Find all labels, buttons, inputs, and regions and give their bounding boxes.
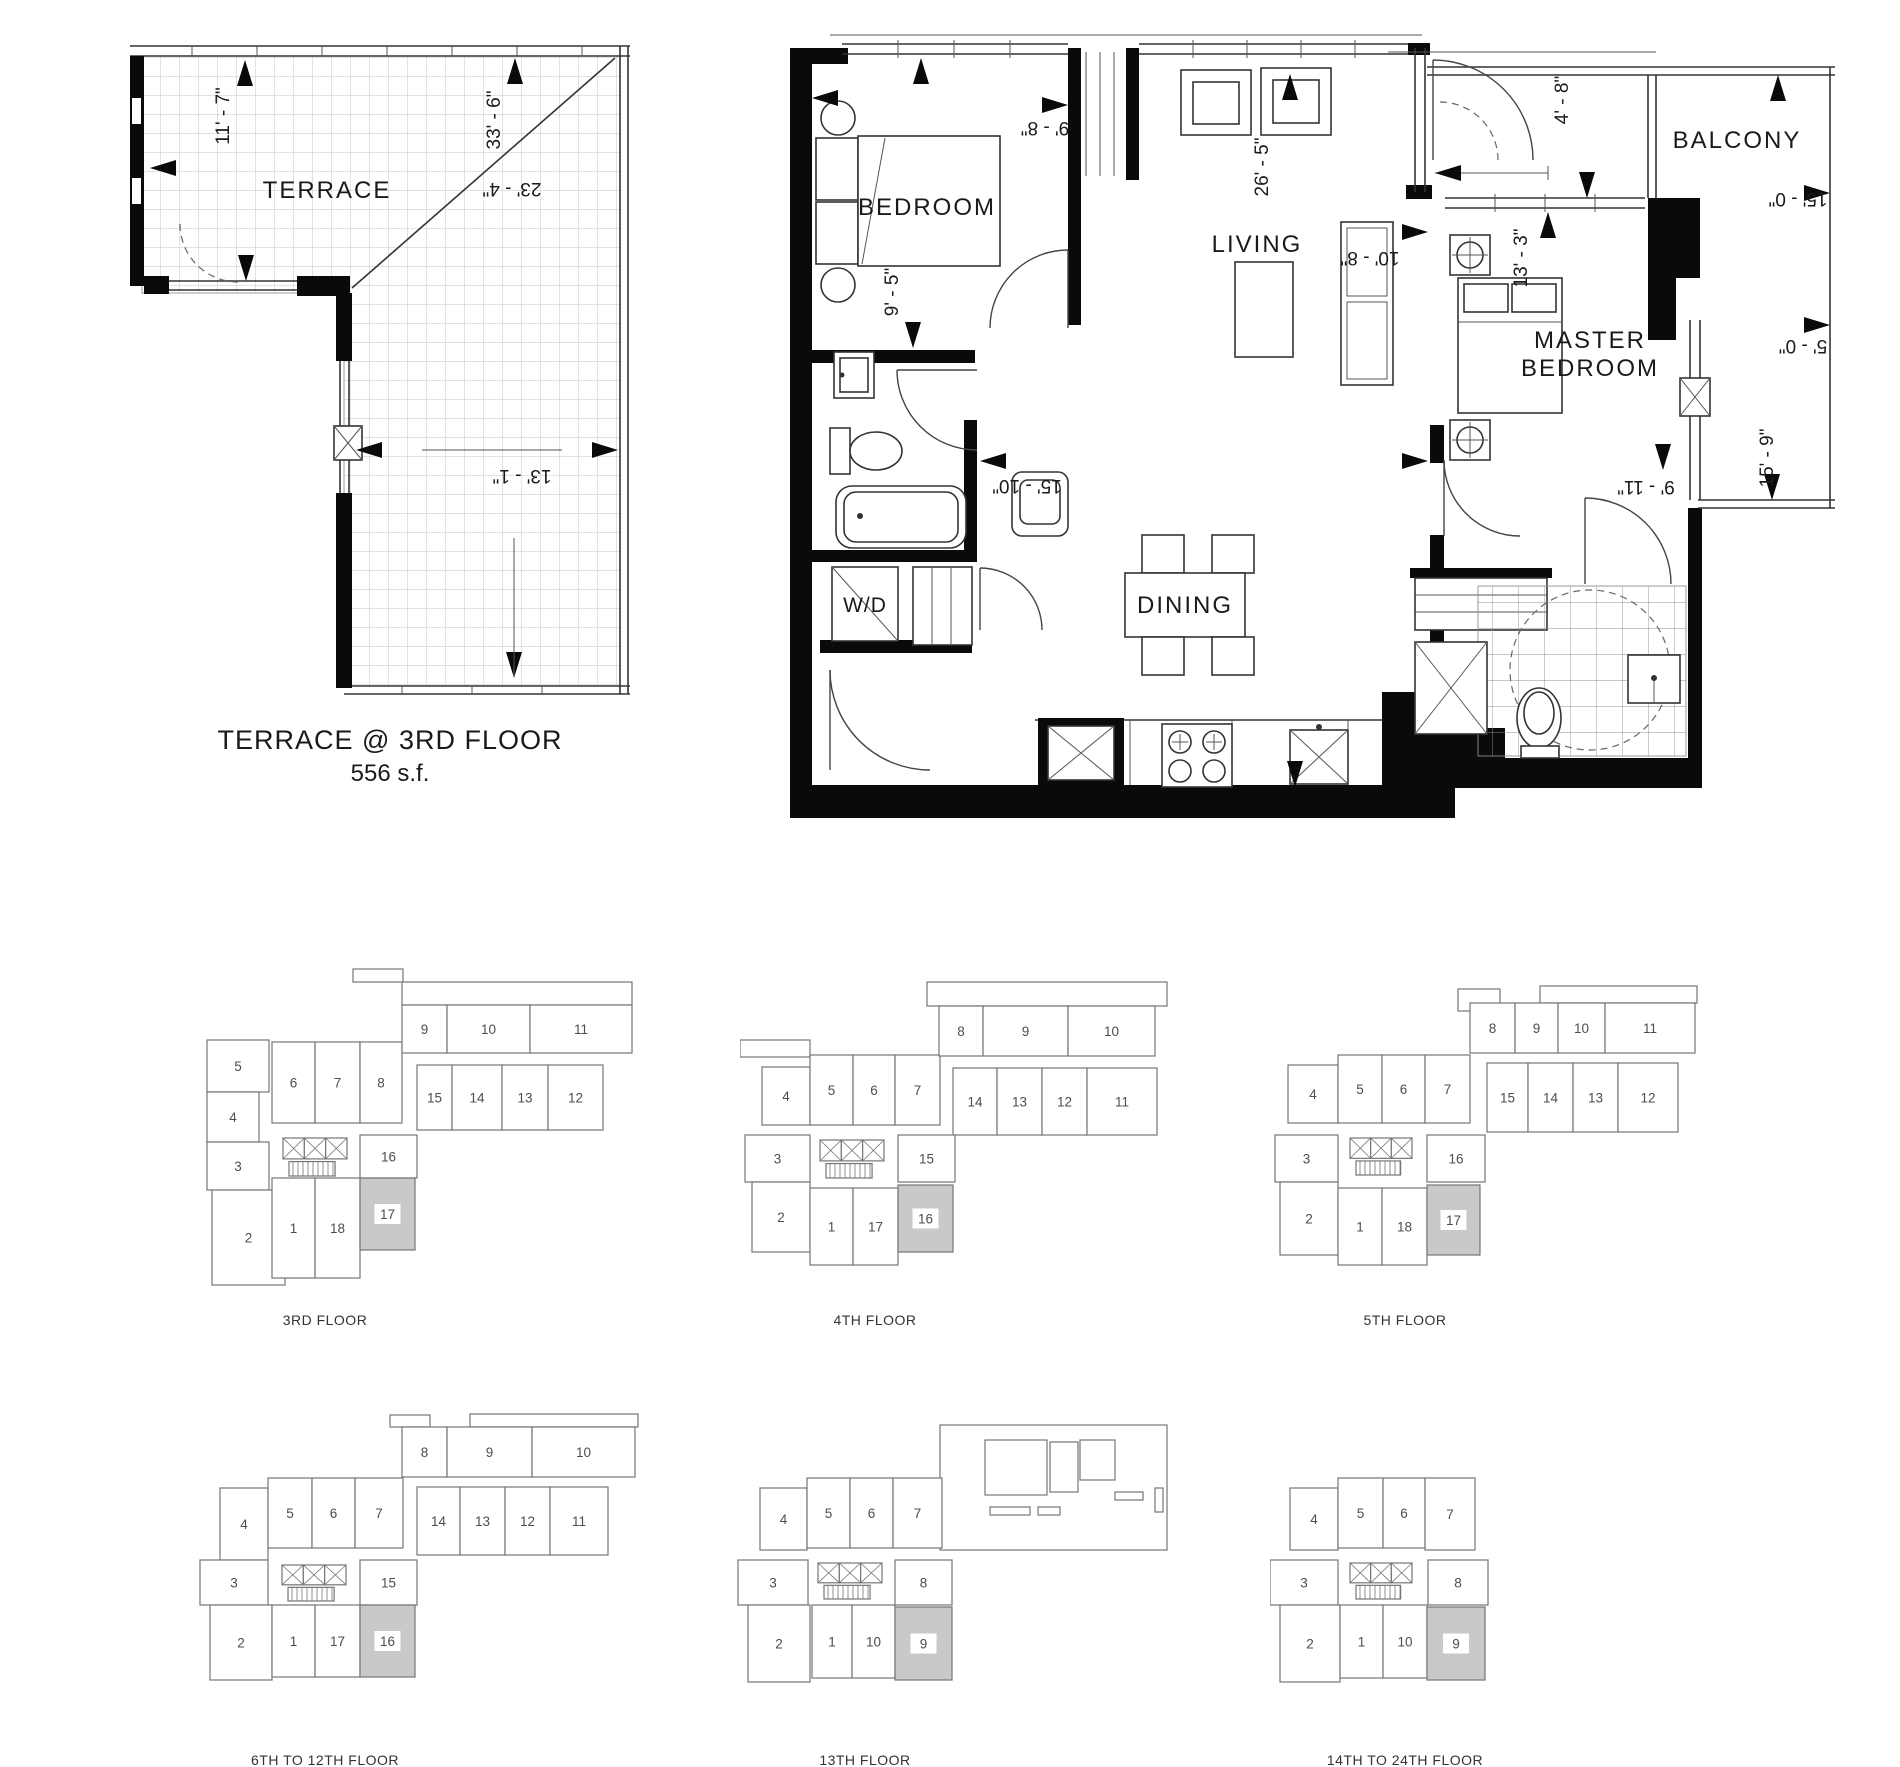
- keyplan-caption: 3RD FLOOR: [200, 1312, 450, 1328]
- keyplan-room: [470, 1414, 638, 1427]
- keyplan-unit-number: 10: [1104, 1024, 1119, 1039]
- keyplan-unit-number: 16: [380, 1634, 395, 1649]
- toilet-icon: [830, 428, 902, 474]
- keyplan-unit-number: 17: [1446, 1213, 1461, 1228]
- keyplan-unit-number: 2: [775, 1637, 783, 1652]
- keyplan-unit-number: 8: [957, 1024, 965, 1039]
- keyplan-unit-number: 6: [870, 1083, 878, 1098]
- keyplan-unit-number: 13: [1588, 1091, 1603, 1106]
- keyplan-unit-number: 8: [421, 1445, 429, 1460]
- keyplan-unit-number: 10: [576, 1445, 591, 1460]
- chair-icon: [1142, 535, 1184, 573]
- keyplan-6th-to-12th-floor: 4325678910141312111511716 6TH TO 12TH FL…: [190, 1400, 670, 1767]
- keyplan-unit-number: 2: [245, 1231, 253, 1246]
- keyplan-caption: 13TH FLOOR: [740, 1752, 990, 1767]
- closet-icon: [1086, 52, 1114, 176]
- keyplan-unit-number: 9: [920, 1637, 928, 1652]
- keyplan-5th-floor: 432567891011151413121611817 5TH FLOOR: [1270, 960, 1750, 1350]
- prep-sink-icon: [1290, 724, 1348, 784]
- keyplan-room: [1038, 1507, 1060, 1515]
- living-label: LIVING: [1212, 231, 1303, 258]
- terrace-plan: 11' - 7" 33' - 6" 23' - 4" 13' - 1" TERR…: [122, 38, 642, 708]
- dim-bedroom-depth: 9' - 5": [882, 268, 903, 316]
- keyplan-unit-number: 3: [774, 1152, 782, 1167]
- lamp-icon: [821, 101, 855, 135]
- dim-terrace-left: 11' - 7": [213, 87, 234, 145]
- keyplan-drawing: 4325678910141312111511716: [190, 1400, 670, 1767]
- terrace-floor: [142, 56, 620, 686]
- chair-icon: [1212, 535, 1254, 573]
- keyplan-unit-number: 10: [1397, 1635, 1412, 1650]
- keyplan-unit-number: 7: [914, 1083, 922, 1098]
- dim-entry-width: 4' - 8": [1552, 76, 1573, 124]
- keyplan-room: [402, 982, 632, 1005]
- keyplan-unit-number: 5: [1357, 1506, 1365, 1521]
- laundry-label: W/D: [843, 594, 887, 617]
- keyplan-room: [1115, 1492, 1143, 1500]
- keyplan-13th-floor: 43256781109 13TH FLOOR: [730, 1400, 1210, 1767]
- master-bedroom-label-2: BEDROOM: [1521, 355, 1659, 382]
- keyplan-unit-number: 1: [828, 1635, 836, 1650]
- keyplan-unit-number: 14: [967, 1095, 983, 1110]
- dim-balcony-mid: 5' - 0": [1779, 335, 1827, 356]
- keyplan-unit-number: 12: [520, 1514, 535, 1529]
- keyplan-unit-number: 12: [568, 1091, 583, 1106]
- keyplan-unit-number: 12: [1640, 1091, 1655, 1106]
- laundry: W/D: [830, 567, 972, 770]
- keyplan-unit-number: 6: [1400, 1082, 1408, 1097]
- keyplan-unit-number: 3: [234, 1159, 242, 1174]
- keyplan-unit-number: 13: [517, 1091, 532, 1106]
- living-room: LIVING: [1181, 68, 1393, 385]
- bathtub-icon: [836, 486, 966, 548]
- stairs-icon: [1356, 1161, 1401, 1175]
- keyplan-unit-number: 5: [1356, 1082, 1364, 1097]
- bedroom-label: BEDROOM: [858, 194, 996, 221]
- keyplan-caption: 6TH TO 12TH FLOOR: [200, 1752, 450, 1767]
- keyplan-unit-number: 5: [286, 1506, 294, 1521]
- keyplan-drawing: 43256781109: [1270, 1400, 1750, 1767]
- keyplan-unit-number: 10: [866, 1635, 881, 1650]
- terrace-caption-title: TERRACE @ 3RD FLOOR: [160, 722, 620, 758]
- keyplan-unit-number: 11: [1115, 1095, 1129, 1110]
- keyplan-drawing: 43256781109: [730, 1400, 1210, 1767]
- keyplan-unit-number: 6: [868, 1506, 876, 1521]
- keyplan-unit-number: 4: [240, 1517, 248, 1532]
- keyplan-unit-number: 13: [1012, 1095, 1027, 1110]
- keyplan-unit-number: 18: [330, 1221, 345, 1236]
- keyplan-unit-number: 7: [375, 1506, 383, 1521]
- keyplan-unit-number: 4: [1310, 1512, 1318, 1527]
- keyplan-unit-number: 5: [234, 1059, 242, 1074]
- keyplan-unit-number: 2: [1305, 1212, 1313, 1227]
- keyplan-unit-number: 8: [1454, 1576, 1462, 1591]
- keyplan-unit-number: 14: [469, 1091, 485, 1106]
- keyplan-drawing: 432567891011151413121611817: [1270, 960, 1750, 1350]
- terrace-caption: TERRACE @ 3RD FLOOR 556 s.f.: [160, 722, 620, 791]
- terrace-room-label: TERRACE: [263, 177, 392, 204]
- floor-plan-sheet: 11' - 7" 33' - 6" 23' - 4" 13' - 1" TERR…: [0, 0, 1900, 1767]
- kitchen-sink-icon: [1038, 718, 1124, 788]
- keyplan-unit-number: 9: [421, 1022, 429, 1037]
- bedroom-door-arc: [990, 250, 1068, 328]
- armchair-icon: [1181, 70, 1251, 135]
- keyplan-unit-number: 5: [828, 1083, 836, 1098]
- keyplan-unit-number: 9: [486, 1445, 494, 1460]
- entry: [1433, 60, 1548, 180]
- keyplan-unit-number: 16: [1448, 1152, 1463, 1167]
- keyplan-unit-number: 3: [230, 1576, 238, 1591]
- keyplan-unit-number: 1: [828, 1220, 836, 1235]
- master-bedroom-label-1: MASTER: [1534, 327, 1646, 354]
- keyplan-unit-number: 1: [290, 1221, 298, 1236]
- keyplan-unit-number: 15: [427, 1091, 442, 1106]
- keyplan-unit-number: 16: [918, 1212, 933, 1227]
- keyplan-room: [1050, 1442, 1078, 1492]
- keyplan-unit-number: 9: [1533, 1021, 1541, 1036]
- keyplan-unit-number: 17: [380, 1207, 395, 1222]
- keyplan-unit-number: 6: [1400, 1506, 1408, 1521]
- balcony-label: BALCONY: [1673, 127, 1802, 154]
- unit-floor-plan: BEDROOM LIVING: [790, 30, 1835, 830]
- keyplan-unit-number: 1: [290, 1634, 298, 1649]
- dim-master-width: 13' - 3": [1511, 229, 1532, 288]
- keyplan-unit-number: 15: [1500, 1091, 1515, 1106]
- dim-balcony-top: 15' - 0": [1769, 188, 1828, 209]
- keyplan-unit-number: 2: [237, 1636, 245, 1651]
- keyplan-unit-number: 13: [475, 1514, 490, 1529]
- keyplan-unit-number: 16: [381, 1150, 396, 1165]
- sink-icon: [1628, 655, 1680, 703]
- keyplan-room: [1080, 1440, 1115, 1480]
- keyplan-unit-number: 7: [1446, 1507, 1454, 1522]
- keyplan-unit-number: 12: [1057, 1095, 1072, 1110]
- ensuite-door-arc: [1585, 498, 1671, 584]
- lamp-icon: [821, 268, 855, 302]
- front-door-arc: [830, 670, 930, 770]
- keyplan-unit-number: 3: [769, 1576, 777, 1591]
- keyplan-drawing: 543267891011151413121611817: [190, 960, 670, 1350]
- keyplan-14th-to-24th-floor: 43256781109 14TH TO 24TH FLOOR: [1270, 1400, 1750, 1767]
- ceiling-light-icon: [1450, 420, 1490, 460]
- shower-icon: [1415, 642, 1487, 734]
- keyplan-unit-number: 1: [1356, 1220, 1364, 1235]
- keyplan-room: [1155, 1488, 1163, 1512]
- keyplan-unit-number: 7: [334, 1076, 342, 1091]
- keyplan-unit-number: 15: [381, 1576, 396, 1591]
- dim-living-length: 26' - 5": [1252, 138, 1273, 197]
- keyplan-unit-number: 11: [1643, 1021, 1657, 1036]
- keyplan-unit-number: 15: [919, 1152, 934, 1167]
- dim-terrace-diagonal: 33' - 6": [484, 91, 505, 150]
- armchair-icon: [1261, 68, 1331, 135]
- keyplan-unit-number: 18: [1397, 1220, 1412, 1235]
- master-door-arc: [1444, 460, 1520, 536]
- dining-label: DINING: [1137, 592, 1233, 619]
- keyplan-caption: 14TH TO 24TH FLOOR: [1280, 1752, 1530, 1767]
- kitchen-counter-icon: [1341, 222, 1393, 385]
- keyplan-unit-number: 9: [1452, 1637, 1460, 1652]
- keyplan-unit-number: 1: [1358, 1635, 1366, 1650]
- keyplan-unit-number: 6: [290, 1076, 298, 1091]
- dim-dining-width: 15' - 10": [992, 475, 1062, 496]
- dim-terrace-top-width: 23' - 4": [483, 178, 542, 199]
- bathroom: [830, 352, 977, 548]
- keyplan-room: [985, 1440, 1047, 1495]
- toilet-icon: [1517, 688, 1561, 758]
- keyplan-3rd-floor: 543267891011151413121611817 3RD FLOOR: [190, 960, 670, 1350]
- keyplan-unit-number: 9: [1022, 1024, 1030, 1039]
- keyplan-unit-number: 2: [777, 1210, 785, 1225]
- chair-icon: [1212, 637, 1254, 675]
- hall-door-arc: [980, 568, 1042, 630]
- keyplan-unit-number: 7: [914, 1506, 922, 1521]
- keyplan-room: [740, 1040, 810, 1057]
- keyplan-unit-number: 7: [1444, 1082, 1452, 1097]
- dim-balcony-right: 15' - 9": [1757, 429, 1778, 488]
- keyplan-unit-number: 4: [229, 1110, 237, 1125]
- keyplan-unit-number: 17: [330, 1634, 345, 1649]
- keyplan-unit-number: 4: [780, 1512, 788, 1527]
- dining: DINING: [1125, 535, 1254, 675]
- linen-closet-icon: [913, 567, 972, 645]
- keyplan-room: [353, 969, 403, 982]
- keyplan-unit-number: 11: [572, 1514, 586, 1529]
- keyplan-unit-number: 8: [377, 1076, 385, 1091]
- keyplan-unit-number: 10: [481, 1022, 496, 1037]
- keyplan-room: [1540, 986, 1697, 1003]
- keyplan-caption: 5TH FLOOR: [1280, 1312, 1530, 1328]
- keyplan-drawing: 4325678910141312111511716: [740, 960, 1220, 1350]
- keyplan-caption: 4TH FLOOR: [750, 1312, 1000, 1328]
- dim-kitchen-width: 10' - 8": [1341, 247, 1400, 268]
- keyplan-unit-number: 4: [782, 1089, 790, 1104]
- keyplan-unit-number: 6: [330, 1506, 338, 1521]
- keyplan-unit-number: 14: [1543, 1091, 1559, 1106]
- keyplan-unit-number: 5: [825, 1506, 833, 1521]
- chair-icon: [1142, 637, 1184, 675]
- sink-icon: [834, 352, 874, 398]
- stairs-icon: [1356, 1585, 1401, 1599]
- keyplan-unit-number: 3: [1303, 1152, 1311, 1167]
- keyplan-room: [990, 1507, 1030, 1515]
- keyplan-unit-number: 17: [868, 1220, 883, 1235]
- keyplan-room: [927, 982, 1167, 1006]
- keyplan-unit-number: 3: [1300, 1576, 1308, 1591]
- dim-terrace-lower-width: 13' - 1": [493, 465, 552, 486]
- keyplan-room: [390, 1415, 430, 1427]
- ceiling-light-icon: [1450, 235, 1490, 275]
- keyplan-unit-number: 8: [1489, 1021, 1497, 1036]
- keyplan-unit-number: 8: [920, 1576, 928, 1591]
- keyplan-unit-number: 4: [1309, 1087, 1317, 1102]
- keyplan-4th-floor: 4325678910141312111511716 4TH FLOOR: [740, 960, 1220, 1350]
- dim-bedroom-width: 9' - 8": [1021, 117, 1069, 138]
- stove-icon: [1162, 724, 1232, 787]
- terrace-caption-area: 556 s.f.: [160, 758, 620, 790]
- keyplan-unit-number: 2: [1306, 1637, 1314, 1652]
- keyplan-unit-number: 14: [431, 1514, 447, 1529]
- closet-door-arc: [1440, 102, 1498, 160]
- coffee-table-icon: [1235, 262, 1293, 357]
- keyplan-unit-number: 11: [574, 1022, 588, 1037]
- kitchen: [1035, 718, 1382, 788]
- dim-master-depth: 9' - 11": [1617, 476, 1675, 497]
- keyplan-unit-number: 10: [1574, 1021, 1589, 1036]
